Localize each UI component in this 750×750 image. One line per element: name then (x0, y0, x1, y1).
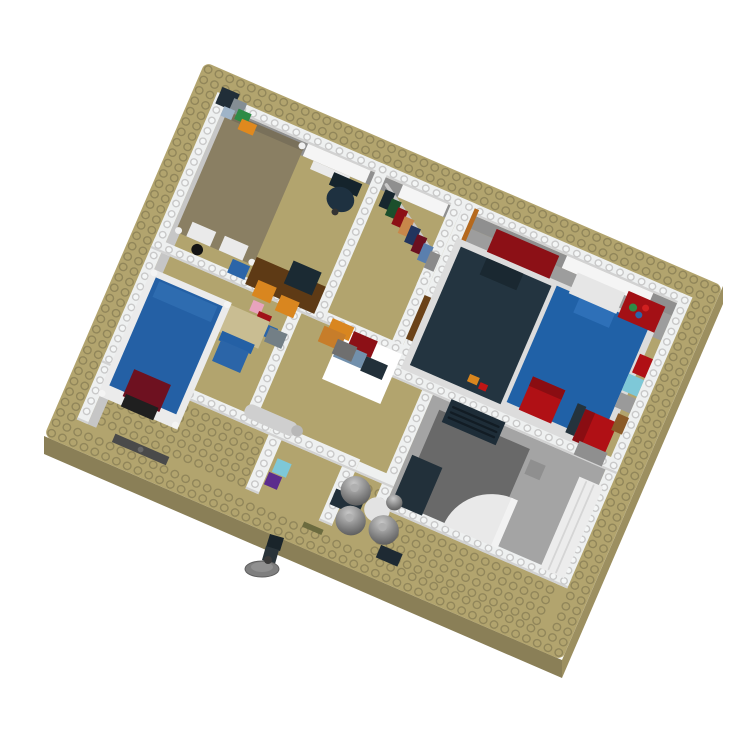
lego-house-3d-render[interactable] (0, 0, 750, 750)
baseplate-group (44, 62, 723, 660)
render-viewport[interactable] (0, 0, 750, 750)
edge-stand-hub (264, 556, 272, 564)
